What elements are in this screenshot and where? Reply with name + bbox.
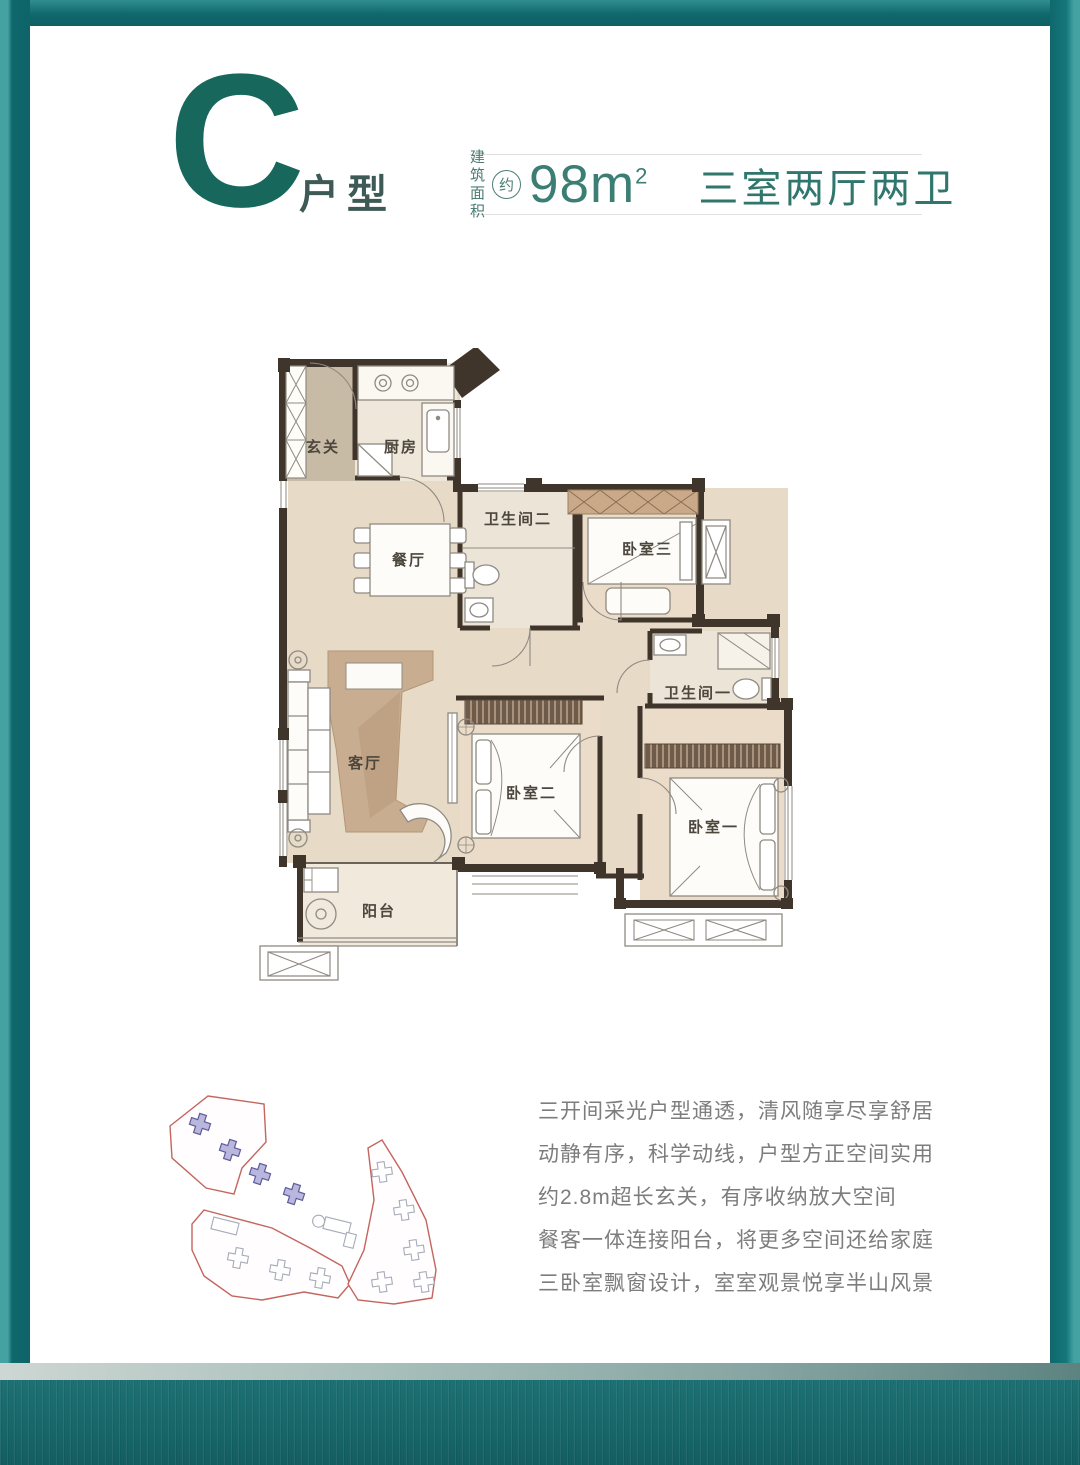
label-bed1: 卧室一 bbox=[688, 818, 739, 836]
bottom-band-shine bbox=[0, 1363, 1080, 1380]
frame-top-border bbox=[0, 0, 1080, 26]
label-bath2: 卫生间二 bbox=[484, 510, 552, 528]
label-balcony: 阳台 bbox=[362, 902, 396, 920]
description-block: 三开间采光户型通透，清风随享尽享舒居 动静有序，科学动线，户型方正空间实用 约2… bbox=[538, 1090, 1018, 1305]
label-entry: 玄关 bbox=[306, 438, 340, 456]
approx-badge: 约 bbox=[492, 170, 521, 199]
area-caption: 建筑 面积 bbox=[470, 149, 486, 221]
area-number: 98m bbox=[529, 155, 635, 214]
room-count-label: 三室两厅两卫 bbox=[698, 156, 956, 214]
area-info-strip: 建筑 面积 约 98m2 三室两厅两卫 bbox=[470, 154, 922, 215]
label-dining: 餐厅 bbox=[392, 551, 426, 569]
area-caption-line1: 建筑 bbox=[470, 149, 486, 185]
floorplan-drawing: 玄关 厨房 餐厅 卫生间二 卧室三 卫生间一 客厅 卧室二 卧室一 阳台 bbox=[250, 348, 810, 1010]
bottom-decor-band bbox=[0, 1363, 1080, 1465]
area-superscript: 2 bbox=[635, 163, 648, 188]
label-bed3: 卧室三 bbox=[622, 540, 673, 558]
sitemap-drawing bbox=[142, 1068, 478, 1344]
poster-page: C 户型 建筑 面积 约 98m2 三室两厅两卫 bbox=[0, 0, 1080, 1465]
description-line: 三卧室飘窗设计，室室观景悦享半山风景 bbox=[538, 1262, 1018, 1305]
description-line: 约2.8m超长玄关，有序收纳放大空间 bbox=[538, 1176, 1018, 1219]
area-value: 98m2 bbox=[529, 154, 648, 215]
label-living: 客厅 bbox=[347, 754, 382, 772]
description-line: 餐客一体连接阳台，将更多空间还给家庭 bbox=[538, 1219, 1018, 1262]
unit-type-letter: C bbox=[168, 46, 305, 236]
unit-type-label: 户型 bbox=[299, 162, 395, 220]
frame-right-border bbox=[1050, 0, 1080, 1363]
label-bed2: 卧室二 bbox=[506, 784, 557, 802]
description-line: 动静有序，科学动线，户型方正空间实用 bbox=[538, 1133, 1018, 1176]
bottom-band-curtain bbox=[0, 1380, 1080, 1465]
description-line: 三开间采光户型通透，清风随享尽享舒居 bbox=[538, 1090, 1018, 1133]
area-caption-line2: 面积 bbox=[470, 185, 486, 221]
label-bath1: 卫生间一 bbox=[664, 684, 732, 702]
frame-left-border bbox=[0, 0, 30, 1363]
label-kitchen: 厨房 bbox=[384, 438, 418, 456]
